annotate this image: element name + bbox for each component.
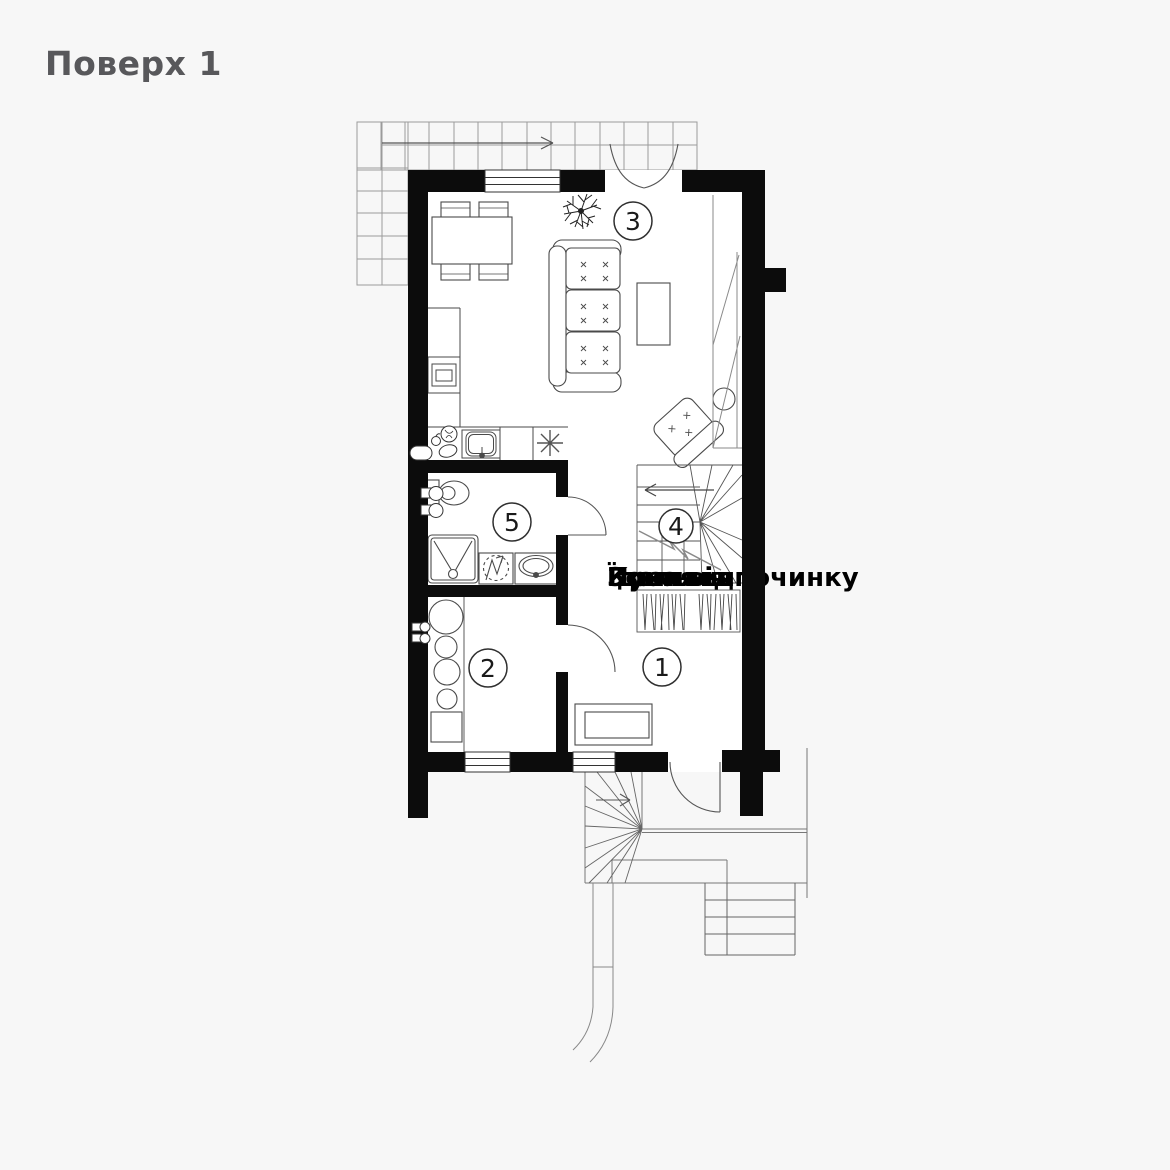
window-utility (465, 752, 510, 772)
room-marker-1: 1 (643, 648, 681, 686)
entry-bench (575, 704, 652, 745)
window-top (485, 170, 560, 192)
utility-equipment (429, 597, 464, 752)
washbasin (515, 553, 558, 590)
room-number: 3 (625, 207, 641, 236)
porch-steps-down (705, 883, 795, 955)
shower (428, 535, 478, 583)
terrace-door-opening (605, 170, 682, 192)
room-marker-3: 3 (614, 202, 652, 240)
side-table (713, 388, 735, 410)
overlapping-room-labels: Пральня Кухня Їдальня Зона відпочинку (607, 561, 859, 593)
room-number: 2 (480, 654, 496, 683)
oven (428, 357, 460, 393)
room-marker-4: 4 (659, 509, 693, 543)
floor-plan-page: Поверх 1 (0, 0, 1170, 1170)
porch-winder-stairs (585, 772, 642, 883)
garden-path (573, 883, 613, 1062)
entrance-door-opening (668, 752, 722, 772)
porch-stair-arrow-icon (596, 794, 630, 806)
room-label: Зона відпочинку (607, 563, 859, 593)
coffee-table (637, 283, 670, 345)
room-marker-2: 2 (469, 649, 507, 687)
room-number: 1 (654, 653, 670, 682)
window-hall (573, 752, 615, 772)
kitchen-sink (462, 430, 500, 458)
room-number: 5 (504, 508, 520, 537)
washing-machine (479, 553, 513, 584)
floor-plan-svg: Пральня Кухня Їдальня Зона відпочинку (0, 0, 1170, 1170)
room-marker-5: 5 (493, 503, 531, 541)
room-number: 4 (668, 512, 684, 541)
sofa (549, 240, 621, 392)
